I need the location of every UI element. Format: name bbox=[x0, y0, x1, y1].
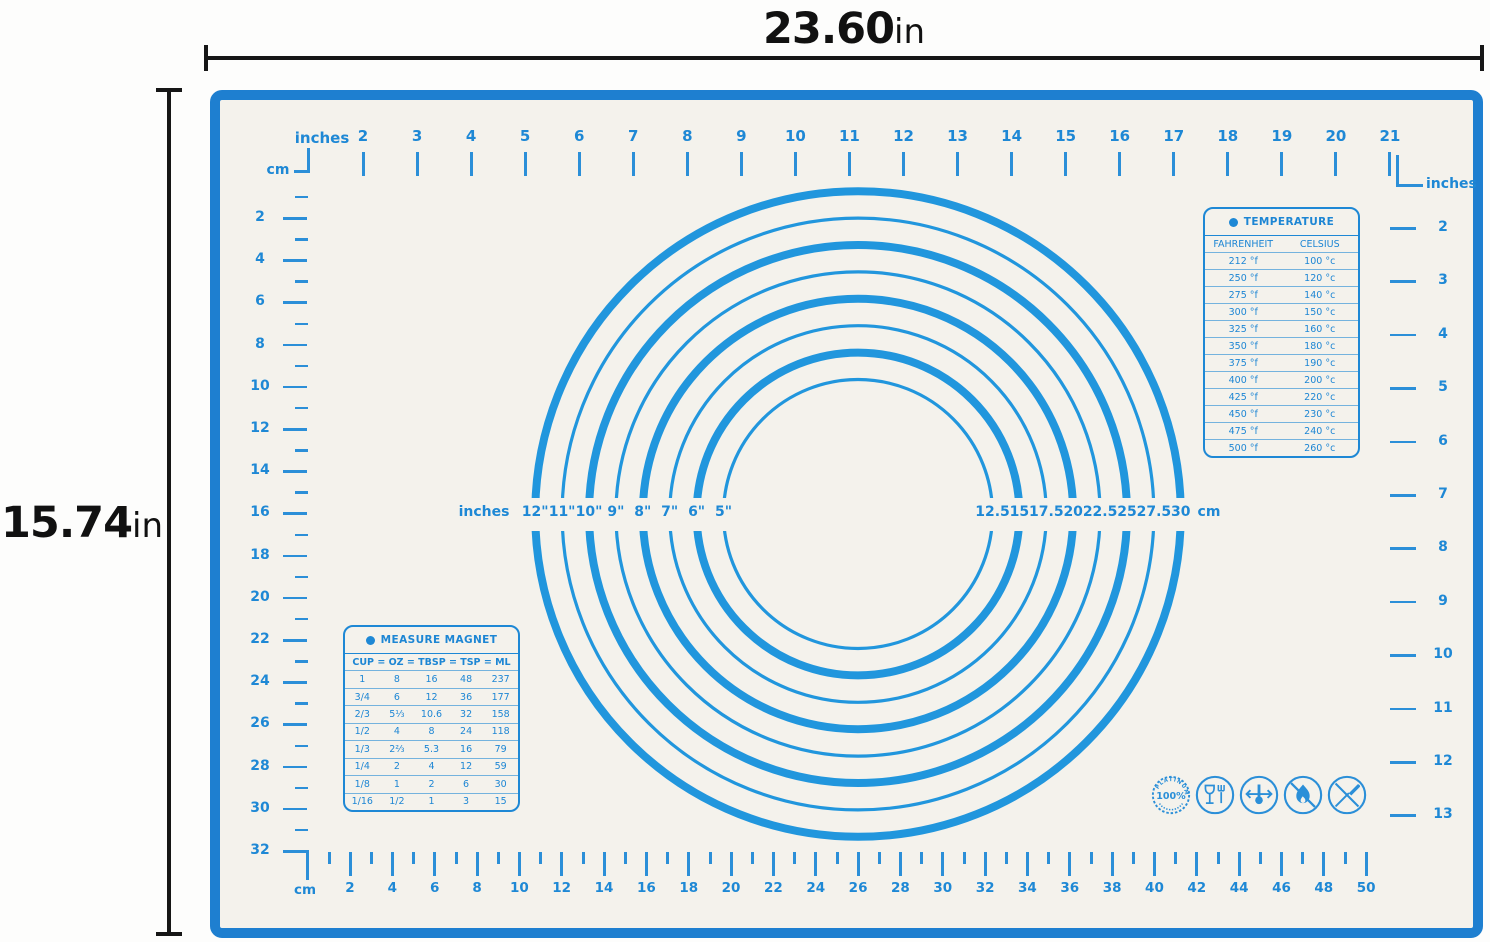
temperature-row: 400 °f200 °c bbox=[1205, 371, 1358, 388]
measure-value: 30 bbox=[483, 779, 518, 790]
left-ruler-tick bbox=[283, 344, 307, 347]
fahrenheit-value: 475 °f bbox=[1205, 426, 1282, 437]
bottom-ruler-minor-tick bbox=[1174, 852, 1177, 864]
circle-inch-label: 10" bbox=[576, 504, 603, 520]
bottom-ruler-tick bbox=[391, 852, 394, 876]
bottom-ruler-tick bbox=[645, 852, 648, 876]
top-ruler-label: 20 bbox=[1320, 127, 1352, 145]
bottom-ruler-minor-tick bbox=[497, 852, 500, 864]
left-ruler-label: 32 bbox=[244, 842, 276, 858]
bottom-ruler-tick bbox=[1280, 852, 1283, 876]
bottom-ruler-minor-tick bbox=[793, 852, 796, 864]
top-ruler-label: 15 bbox=[1050, 127, 1082, 145]
bottom-ruler-minor-tick bbox=[1132, 852, 1135, 864]
left-ruler-label: 2 bbox=[244, 209, 276, 225]
measure-value: 16 bbox=[414, 674, 449, 685]
bottom-ruler-minor-tick bbox=[1344, 852, 1347, 864]
left-ruler-tick bbox=[283, 808, 307, 811]
left-ruler-minor-tick bbox=[295, 787, 308, 790]
left-ruler-minor-tick bbox=[295, 576, 308, 579]
measure-value: 12 bbox=[449, 761, 484, 772]
bottom-ruler-label: 38 bbox=[1096, 880, 1128, 896]
celsius-value: 220 °c bbox=[1282, 392, 1359, 403]
bottom-ruler-label: 26 bbox=[842, 880, 874, 896]
top-ruler-tick bbox=[956, 152, 959, 176]
left-ruler-label: 18 bbox=[244, 547, 276, 563]
left-ruler-tick bbox=[283, 428, 307, 431]
measure-value: 24 bbox=[449, 726, 484, 737]
measure-value: 8 bbox=[380, 674, 415, 685]
measure-value: 6 bbox=[380, 692, 415, 703]
left-ruler-tick bbox=[283, 555, 307, 558]
top-ruler-label: 17 bbox=[1158, 127, 1190, 145]
top-ruler-tick bbox=[362, 152, 365, 176]
circle-inch-label: 8" bbox=[634, 504, 651, 520]
top-ruler-tick bbox=[1010, 152, 1013, 176]
bottom-ruler-tick bbox=[1111, 852, 1114, 876]
top-ruler-tick bbox=[1334, 152, 1337, 176]
bottom-ruler-tick bbox=[349, 852, 352, 876]
measure-value: 48 bbox=[449, 674, 484, 685]
right-ruler-label: 9 bbox=[1426, 593, 1460, 609]
measure-value: 36 bbox=[449, 692, 484, 703]
bottom-ruler-tick bbox=[1365, 852, 1368, 876]
temperature-row: 475 °f240 °c bbox=[1205, 422, 1358, 439]
width-dimension-line bbox=[204, 56, 1484, 60]
top-ruler-label: 5 bbox=[509, 127, 541, 145]
top-ruler-label: 13 bbox=[942, 127, 974, 145]
left-ruler-tick bbox=[283, 597, 307, 600]
right-ruler-tick bbox=[1390, 761, 1416, 764]
left-ruler-minor-tick bbox=[295, 323, 308, 326]
fahrenheit-value: 300 °f bbox=[1205, 307, 1282, 318]
bottom-ruler-label: 44 bbox=[1223, 880, 1255, 896]
food-contact-safe-icon bbox=[1194, 772, 1236, 818]
temperature-row: 325 °f160 °c bbox=[1205, 320, 1358, 337]
measure-value: 10.6 bbox=[414, 709, 449, 720]
right-ruler-label: 8 bbox=[1426, 539, 1460, 555]
celsius-value: 140 °c bbox=[1282, 290, 1359, 301]
left-ruler-tick bbox=[283, 301, 307, 304]
circle-inch-unit-label: inches bbox=[459, 504, 510, 520]
bottom-ruler-label: 10 bbox=[503, 880, 535, 896]
celsius-value: 260 °c bbox=[1282, 443, 1359, 454]
top-ruler-label: 7 bbox=[617, 127, 649, 145]
circle-cm-label: 27.5 bbox=[1137, 504, 1172, 520]
width-dimension-value: 23.60 bbox=[763, 4, 894, 54]
bottom-ruler-minor-tick bbox=[370, 852, 373, 864]
top-ruler-label: 8 bbox=[671, 127, 703, 145]
no-knife-cutting-icon bbox=[1326, 772, 1368, 818]
circle-inch-label: 7" bbox=[661, 504, 678, 520]
circle-cm-label: 12.5 bbox=[975, 504, 1010, 520]
left-ruler-tick bbox=[283, 723, 307, 726]
right-ruler-unit-label: inches bbox=[1426, 176, 1476, 192]
measure-value: 1/2 bbox=[345, 726, 380, 737]
top-ruler-label: 21 bbox=[1374, 127, 1406, 145]
bottom-ruler-tick bbox=[772, 852, 775, 876]
left-ruler-minor-tick bbox=[295, 449, 308, 452]
measure-value: 1/2 bbox=[380, 796, 415, 807]
bottom-ruler-label: 48 bbox=[1308, 880, 1340, 896]
temperature-panel: TEMPERATURE FAHRENHEIT CELSIUS 212 °f100… bbox=[1203, 207, 1360, 458]
top-ruler-tick bbox=[902, 152, 905, 176]
celsius-value: 230 °c bbox=[1282, 409, 1359, 420]
celsius-value: 240 °c bbox=[1282, 426, 1359, 437]
platinum-100-text: 100% bbox=[1156, 791, 1186, 802]
right-ruler-tick bbox=[1390, 547, 1416, 550]
measurement-circle bbox=[724, 380, 993, 649]
bottom-ruler-tick bbox=[603, 852, 606, 876]
left-ruler-tick bbox=[283, 639, 307, 642]
width-dimension-unit: in bbox=[894, 12, 925, 52]
height-dimension-unit: in bbox=[132, 506, 163, 546]
ruler-corner-line bbox=[1396, 155, 1399, 186]
top-ruler-unit-label: inches bbox=[294, 129, 350, 147]
bottom-ruler-tick bbox=[730, 852, 733, 876]
right-ruler-tick bbox=[1390, 441, 1416, 444]
top-ruler-tick bbox=[1280, 152, 1283, 176]
bottom-ruler-minor-tick bbox=[412, 852, 415, 864]
circle-inch-label: 6" bbox=[688, 504, 705, 520]
bottom-ruler-minor-tick bbox=[1047, 852, 1050, 864]
temperature-row: 425 °f220 °c bbox=[1205, 388, 1358, 405]
temperature-row: 350 °f180 °c bbox=[1205, 337, 1358, 354]
circle-cm-label: 22.5 bbox=[1083, 504, 1118, 520]
measure-row: 1/161/21315 bbox=[345, 793, 518, 810]
bottom-ruler-label: 16 bbox=[630, 880, 662, 896]
bottom-ruler-tick bbox=[560, 852, 563, 876]
top-ruler-tick bbox=[1226, 152, 1229, 176]
bottom-ruler-label: 14 bbox=[588, 880, 620, 896]
measure-column-headers: CUP = OZ = TBSP = TSP = ML bbox=[345, 657, 518, 668]
top-ruler-label: 3 bbox=[401, 127, 433, 145]
circle-cm-label: 25 bbox=[1117, 504, 1136, 520]
temperature-row: 275 °f140 °c bbox=[1205, 286, 1358, 303]
height-dimension-value: 15.74 bbox=[1, 498, 132, 548]
bottom-ruler-minor-tick bbox=[878, 852, 881, 864]
measure-row: 1/4241259 bbox=[345, 758, 518, 775]
right-ruler-tick bbox=[1390, 227, 1416, 230]
fahrenheit-value: 212 °f bbox=[1205, 256, 1282, 267]
measure-value: 6 bbox=[449, 779, 484, 790]
bottom-ruler-tick bbox=[1322, 852, 1325, 876]
height-dimension-label: 15.74in bbox=[0, 498, 163, 548]
measure-magnet-panel: MEASURE MAGNET CUP = OZ = TBSP = TSP = M… bbox=[343, 625, 520, 812]
top-ruler-tick bbox=[848, 152, 851, 176]
top-ruler-label: 9 bbox=[725, 127, 757, 145]
temperature-row: 250 °f120 °c bbox=[1205, 269, 1358, 286]
bullet-icon bbox=[366, 636, 375, 645]
measure-value: 2⅔ bbox=[380, 744, 415, 755]
measure-value: 1 bbox=[345, 674, 380, 685]
measure-value: 5⅓ bbox=[380, 709, 415, 720]
measure-value: 79 bbox=[483, 744, 518, 755]
bottom-ruler-minor-tick bbox=[920, 852, 923, 864]
celsius-value: 200 °c bbox=[1282, 375, 1359, 386]
left-ruler-tick bbox=[283, 681, 307, 684]
top-ruler-tick bbox=[1064, 152, 1067, 176]
celsius-value: 180 °c bbox=[1282, 341, 1359, 352]
top-ruler-label: 4 bbox=[455, 127, 487, 145]
measure-magnet-panel-header: MEASURE MAGNET bbox=[345, 627, 518, 654]
measure-value: 118 bbox=[483, 726, 518, 737]
top-ruler-tick bbox=[1172, 152, 1175, 176]
top-ruler-label: 6 bbox=[563, 127, 595, 145]
left-ruler-minor-tick bbox=[295, 702, 308, 705]
left-ruler-label: 24 bbox=[244, 673, 276, 689]
celsius-column-header: CELSIUS bbox=[1282, 239, 1359, 250]
temperature-row: 212 °f100 °c bbox=[1205, 252, 1358, 269]
fahrenheit-value: 400 °f bbox=[1205, 375, 1282, 386]
top-ruler-label: 19 bbox=[1266, 127, 1298, 145]
right-ruler-label: 7 bbox=[1426, 486, 1460, 502]
bottom-ruler-tick bbox=[476, 852, 479, 876]
bottom-ruler-label: 34 bbox=[1011, 880, 1043, 896]
bottom-ruler-label: 40 bbox=[1138, 880, 1170, 896]
measure-value: 2/3 bbox=[345, 709, 380, 720]
fahrenheit-value: 375 °f bbox=[1205, 358, 1282, 369]
bottom-ruler-tick bbox=[687, 852, 690, 876]
circle-cm-label: 15 bbox=[1010, 504, 1029, 520]
left-ruler-label: 30 bbox=[244, 800, 276, 816]
left-ruler-minor-tick bbox=[295, 829, 308, 832]
bottom-ruler-minor-tick bbox=[963, 852, 966, 864]
left-ruler-label: 16 bbox=[244, 504, 276, 520]
bottom-ruler-minor-tick bbox=[709, 852, 712, 864]
top-ruler-label: 18 bbox=[1212, 127, 1244, 145]
left-ruler-label: 8 bbox=[244, 336, 276, 352]
top-ruler-tick bbox=[416, 152, 419, 176]
left-ruler-tick bbox=[283, 512, 307, 515]
bottom-ruler-minor-tick bbox=[751, 852, 754, 864]
bottom-ruler-label: 28 bbox=[884, 880, 916, 896]
measure-value: 1/3 bbox=[345, 744, 380, 755]
right-ruler-tick bbox=[1390, 601, 1416, 604]
top-ruler-label: 12 bbox=[888, 127, 920, 145]
measure-table: CUP = OZ = TBSP = TSP = ML 1816482373/46… bbox=[345, 654, 518, 810]
measure-value: 59 bbox=[483, 761, 518, 772]
right-ruler-tick bbox=[1390, 654, 1416, 657]
bottom-ruler-label: 30 bbox=[927, 880, 959, 896]
left-ruler-minor-tick bbox=[295, 365, 308, 368]
temperature-panel-title: TEMPERATURE bbox=[1244, 216, 1334, 228]
measure-row: 3/461236177 bbox=[345, 688, 518, 705]
celsius-value: 120 °c bbox=[1282, 273, 1359, 284]
temperature-column-header-row: FAHRENHEIT CELSIUS bbox=[1205, 236, 1358, 252]
left-ruler-tick bbox=[283, 386, 307, 389]
top-ruler-tick bbox=[1388, 152, 1391, 176]
bottom-ruler-minor-tick bbox=[1217, 852, 1220, 864]
top-ruler-tick bbox=[794, 152, 797, 176]
measure-value: 1/16 bbox=[345, 796, 380, 807]
measure-value: 3/4 bbox=[345, 692, 380, 703]
bottom-ruler-label: 46 bbox=[1265, 880, 1297, 896]
measure-row: 181648237 bbox=[345, 670, 518, 687]
measure-value: 158 bbox=[483, 709, 518, 720]
celsius-value: 100 °c bbox=[1282, 256, 1359, 267]
right-ruler-tick bbox=[1390, 814, 1416, 817]
top-ruler-label: 10 bbox=[779, 127, 811, 145]
measure-value: 2 bbox=[414, 779, 449, 790]
circle-cm-unit-label: cm bbox=[1198, 504, 1221, 520]
top-ruler-tick bbox=[686, 152, 689, 176]
bottom-ruler-minor-tick bbox=[539, 852, 542, 864]
left-ruler-tick bbox=[283, 217, 307, 220]
bottom-ruler-minor-tick bbox=[582, 852, 585, 864]
left-ruler-minor-tick bbox=[295, 407, 308, 410]
measure-value: 3 bbox=[449, 796, 484, 807]
top-ruler-tick bbox=[632, 152, 635, 176]
bottom-ruler-label: 20 bbox=[715, 880, 747, 896]
bottom-ruler-label: 42 bbox=[1181, 880, 1213, 896]
top-ruler-tick bbox=[470, 152, 473, 176]
bottom-ruler-label: 12 bbox=[546, 880, 578, 896]
left-ruler-label: 4 bbox=[244, 251, 276, 267]
no-open-flame-icon bbox=[1282, 772, 1324, 818]
fahrenheit-value: 250 °f bbox=[1205, 273, 1282, 284]
height-dimension-line bbox=[167, 88, 171, 936]
measure-value: 15 bbox=[483, 796, 518, 807]
bottom-ruler-label: 36 bbox=[1054, 880, 1086, 896]
bottom-ruler-label: 50 bbox=[1350, 880, 1382, 896]
measure-magnet-panel-title: MEASURE MAGNET bbox=[381, 634, 498, 646]
right-ruler-label: 10 bbox=[1426, 646, 1460, 662]
right-ruler-label: 11 bbox=[1426, 700, 1460, 716]
width-dimension-label: 23.60in bbox=[204, 4, 1484, 54]
temperature-row: 500 °f260 °c bbox=[1205, 439, 1358, 456]
bottom-ruler-tick bbox=[857, 852, 860, 876]
temperature-row: 450 °f230 °c bbox=[1205, 405, 1358, 422]
bottom-ruler-unit-label: cm bbox=[288, 882, 322, 898]
right-ruler-tick bbox=[1390, 387, 1416, 390]
circle-inch-label: 9" bbox=[607, 504, 624, 520]
bottom-ruler-label: 6 bbox=[419, 880, 451, 896]
right-ruler-label: 12 bbox=[1426, 753, 1460, 769]
measure-value: 32 bbox=[449, 709, 484, 720]
bottom-ruler-minor-tick bbox=[624, 852, 627, 864]
left-ruler-label: 28 bbox=[244, 758, 276, 774]
top-ruler-tick bbox=[524, 152, 527, 176]
bottom-ruler-minor-tick bbox=[1301, 852, 1304, 864]
fahrenheit-column-header: FAHRENHEIT bbox=[1205, 239, 1282, 250]
measure-column-header-row: CUP = OZ = TBSP = TSP = ML bbox=[345, 654, 518, 670]
fahrenheit-value: 450 °f bbox=[1205, 409, 1282, 420]
right-ruler-tick bbox=[1390, 334, 1416, 337]
celsius-value: 190 °c bbox=[1282, 358, 1359, 369]
left-ruler-tick bbox=[283, 259, 307, 262]
baking-mat: TEMPERATURE FAHRENHEIT CELSIUS 212 °f100… bbox=[210, 90, 1483, 938]
left-ruler-label: 26 bbox=[244, 715, 276, 731]
left-ruler-minor-tick bbox=[295, 618, 308, 621]
temperature-table: FAHRENHEIT CELSIUS 212 °f100 °c250 °f120… bbox=[1205, 236, 1358, 456]
top-ruler-tick bbox=[740, 152, 743, 176]
bottom-ruler-label: 22 bbox=[757, 880, 789, 896]
measure-value: 2 bbox=[380, 761, 415, 772]
top-ruler-label: 14 bbox=[996, 127, 1028, 145]
left-ruler-tick bbox=[283, 470, 307, 473]
celsius-value: 160 °c bbox=[1282, 324, 1359, 335]
right-ruler-tick bbox=[1390, 280, 1416, 283]
bottom-ruler-tick bbox=[1153, 852, 1156, 876]
circle-inch-label: 11" bbox=[549, 504, 576, 520]
left-ruler-minor-tick bbox=[295, 534, 308, 537]
bottom-ruler-tick bbox=[433, 852, 436, 876]
top-ruler-tick bbox=[1118, 152, 1121, 176]
left-ruler-minor-tick bbox=[295, 238, 308, 241]
platinum-100-percent-badge: PLATINUM 100% bbox=[1150, 772, 1192, 818]
right-ruler-label: 5 bbox=[1426, 379, 1460, 395]
temperature-panel-header: TEMPERATURE bbox=[1205, 209, 1358, 236]
top-ruler-tick bbox=[578, 152, 581, 176]
bottom-ruler-label: 8 bbox=[461, 880, 493, 896]
measure-value: 1 bbox=[380, 779, 415, 790]
bottom-ruler-tick bbox=[1195, 852, 1198, 876]
measure-value: 8 bbox=[414, 726, 449, 737]
bottom-ruler-tick bbox=[518, 852, 521, 876]
measure-row: 1/24824118 bbox=[345, 723, 518, 740]
bottom-ruler-minor-tick bbox=[1090, 852, 1093, 864]
measure-value: 5.3 bbox=[414, 744, 449, 755]
measure-value: 1/8 bbox=[345, 779, 380, 790]
right-ruler-label: 3 bbox=[1426, 272, 1460, 288]
left-ruler-minor-tick bbox=[295, 196, 308, 199]
circle-cm-label: 20 bbox=[1063, 504, 1082, 520]
left-ruler-label: 14 bbox=[244, 462, 276, 478]
fahrenheit-value: 500 °f bbox=[1205, 443, 1282, 454]
ruler-corner-line bbox=[1396, 184, 1423, 187]
measure-value: 177 bbox=[483, 692, 518, 703]
measure-value: 16 bbox=[449, 744, 484, 755]
measure-value: 1 bbox=[414, 796, 449, 807]
circle-cm-label: 17.5 bbox=[1029, 504, 1064, 520]
right-ruler-label: 6 bbox=[1426, 433, 1460, 449]
bottom-ruler-minor-tick bbox=[328, 852, 331, 864]
temperature-row: 375 °f190 °c bbox=[1205, 354, 1358, 371]
measure-value: 4 bbox=[380, 726, 415, 737]
circle-cm-label: 30 bbox=[1171, 504, 1190, 520]
top-ruler-label: 16 bbox=[1104, 127, 1136, 145]
bottom-ruler-tick bbox=[899, 852, 902, 876]
left-ruler-unit-label: cm bbox=[262, 162, 294, 178]
fahrenheit-value: 325 °f bbox=[1205, 324, 1282, 335]
left-ruler-minor-tick bbox=[295, 280, 308, 283]
bottom-ruler-label: 32 bbox=[969, 880, 1001, 896]
right-ruler-label: 2 bbox=[1426, 219, 1460, 235]
measure-value: 1/4 bbox=[345, 761, 380, 772]
heat-resistant-icon bbox=[1238, 772, 1280, 818]
measure-row: 1/812630 bbox=[345, 775, 518, 792]
certification-badges: PLATINUM 100% bbox=[1150, 772, 1368, 818]
bottom-ruler-minor-tick bbox=[666, 852, 669, 864]
top-ruler-label: 2 bbox=[347, 127, 379, 145]
left-ruler-tick bbox=[283, 766, 307, 769]
fahrenheit-value: 425 °f bbox=[1205, 392, 1282, 403]
right-ruler-label: 13 bbox=[1426, 806, 1460, 822]
bullet-icon bbox=[1229, 218, 1238, 227]
circle-inch-label: 12" bbox=[522, 504, 549, 520]
right-ruler-label: 4 bbox=[1426, 326, 1460, 342]
bottom-ruler-tick bbox=[1026, 852, 1029, 876]
measure-value: 4 bbox=[414, 761, 449, 772]
bottom-ruler-tick bbox=[1238, 852, 1241, 876]
left-ruler-minor-tick bbox=[295, 745, 308, 748]
bottom-ruler-minor-tick bbox=[1005, 852, 1008, 864]
fahrenheit-value: 275 °f bbox=[1205, 290, 1282, 301]
bottom-ruler-label: 4 bbox=[376, 880, 408, 896]
bottom-ruler-label: 18 bbox=[673, 880, 705, 896]
left-ruler-label: 22 bbox=[244, 631, 276, 647]
